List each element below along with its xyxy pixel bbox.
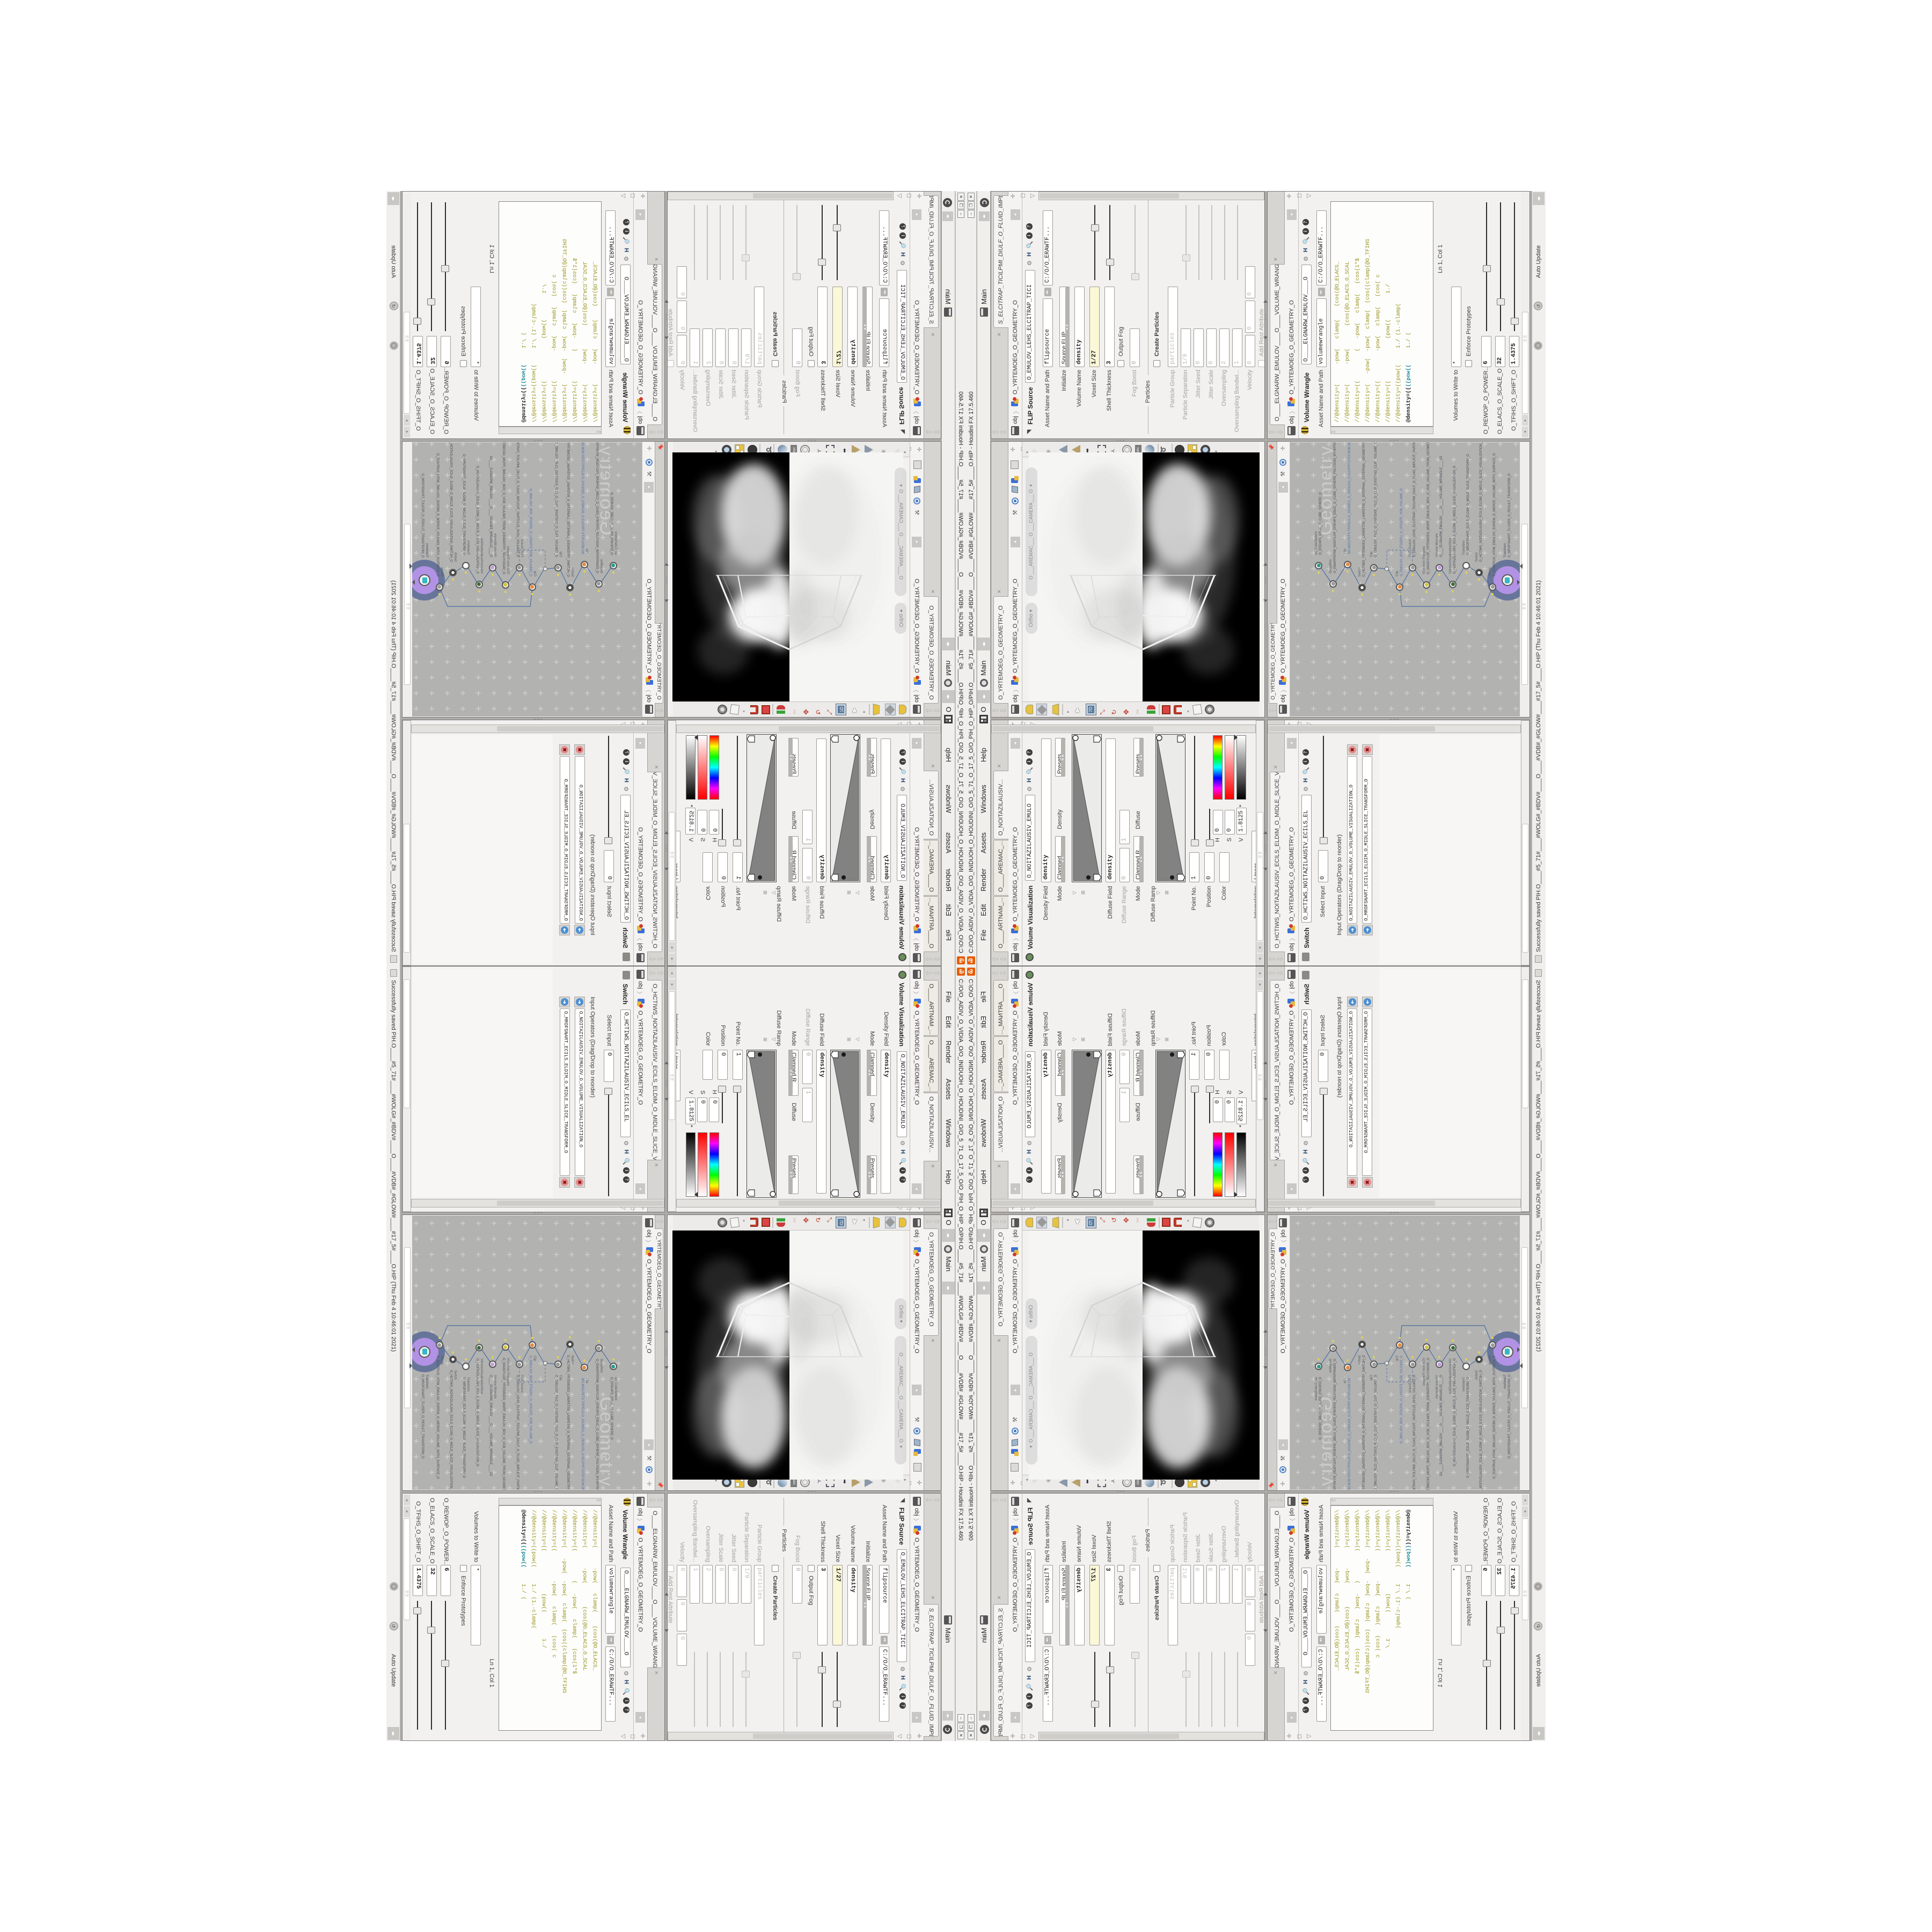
svg-text:Geometry: Geometry [1314,445,1336,536]
svg-text:Geometry: Geometry [1314,1396,1336,1487]
svg-text:Geometry: Geometry [596,445,618,536]
svg-text:Geometry: Geometry [596,1396,618,1487]
